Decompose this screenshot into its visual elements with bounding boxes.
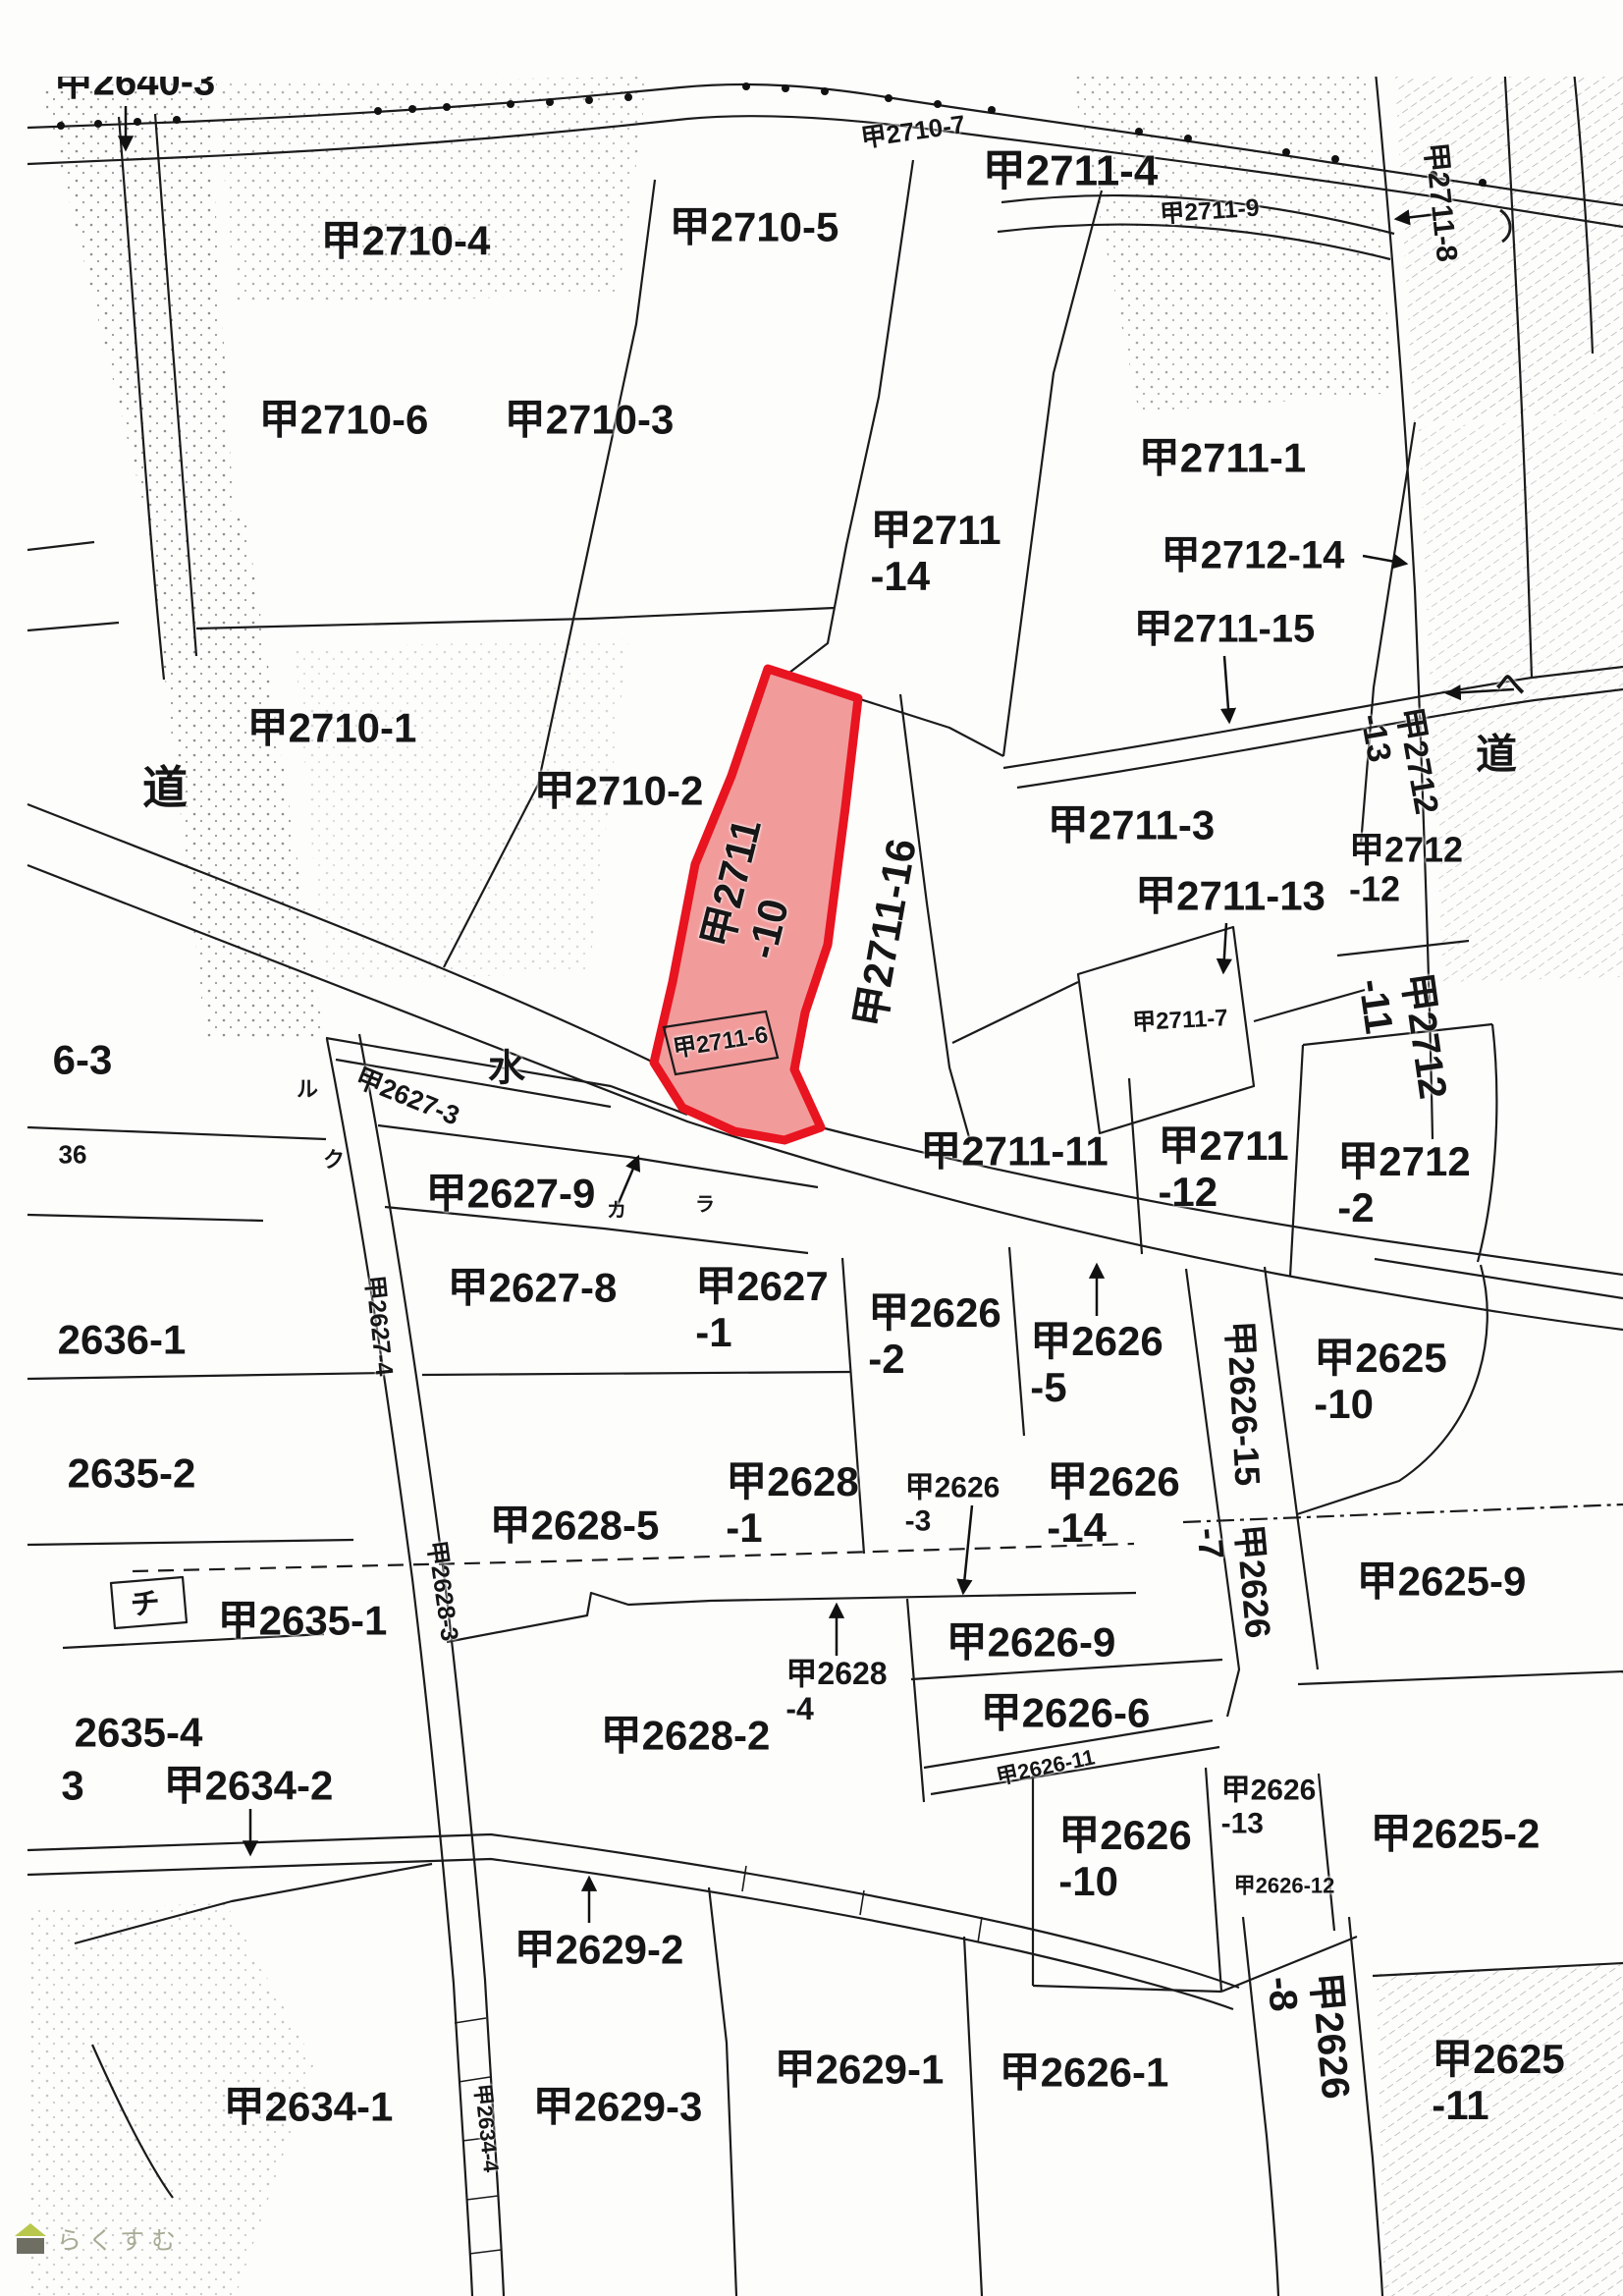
parcel-label-k2627-4: 甲2627-4	[360, 1274, 399, 1377]
parcel-label-k2635-4: 2635-4	[75, 1709, 203, 1755]
parcel-label-k2626-2: 甲2626-2	[868, 1289, 1001, 1382]
parcel-label-n36: 36	[59, 1140, 87, 1169]
parcel-label-k2710-2: 甲2710-2	[534, 767, 704, 813]
parcel-label-k2710-3: 甲2710-3	[505, 396, 675, 442]
parcel-label-k2711-14: 甲2711-14	[870, 507, 1001, 599]
parcel-label-ru: ル	[297, 1078, 318, 1103]
parcel-label-k2626-1: 甲2626-1	[1000, 2049, 1169, 2095]
scan-top-margin	[0, 0, 1623, 77]
parcel-label-k2711-12: 甲2711-12	[1158, 1122, 1288, 1215]
parcel-label-k2712-11: 甲2712-11	[1350, 970, 1455, 1108]
parcel-label-k2711-6: 甲2711-6	[672, 1022, 770, 1064]
parcel-label-k2626-13: 甲2626-13	[1221, 1774, 1317, 1839]
parcel-label-k2711-1: 甲2711-1	[1139, 434, 1306, 480]
parcel-label-k2626-5: 甲2626-5	[1030, 1318, 1163, 1410]
parcel-label-k2710-4: 甲2710-4	[321, 217, 491, 263]
parcel-label-k2711-3: 甲2711-3	[1048, 801, 1215, 847]
parcel-label-k2712-13: 甲2712-13	[1353, 704, 1445, 823]
parcel-label-k2627-8: 甲2627-8	[448, 1264, 618, 1310]
parcel-label-k2711-7: 甲2711-7	[1132, 1006, 1229, 1037]
parcel-label-mizu: 水	[488, 1049, 525, 1091]
parcel-label-k2634-2: 甲2634-2	[164, 1762, 334, 1808]
parcel-label-k2634-1: 甲2634-1	[224, 2083, 394, 2129]
parcel-label-k2625-2: 甲2625-2	[1371, 1810, 1541, 1856]
parcel-label-k2626-6: 甲2626-6	[981, 1689, 1151, 1735]
parcel-label-k2711-8: 甲2711-8	[1418, 141, 1463, 264]
watermark-text: らくすむ	[57, 2221, 183, 2257]
parcel-label-k2627-9: 甲2627-9	[426, 1170, 596, 1216]
parcel-label-michi-left: 道	[142, 763, 188, 814]
parcel-label-k2712-14: 甲2712-14	[1162, 534, 1345, 578]
labels-layer: 甲2640-3甲2710-7甲2711-4甲2710-4甲2710-5甲2711…	[0, 0, 1623, 2296]
parcel-label-k2635-1: 甲2635-1	[218, 1597, 388, 1643]
parcel-label-chi: チ	[130, 1587, 161, 1622]
parcel-label-k2711-4: 甲2711-4	[983, 146, 1159, 194]
parcel-label-k2625-9: 甲2625-9	[1357, 1558, 1527, 1604]
parcel-label-k2712-2: 甲2712-2	[1337, 1138, 1470, 1230]
parcel-label-k26-6-3: 6-3	[53, 1036, 113, 1082]
parcel-label-k2629-3: 甲2629-3	[533, 2083, 703, 2129]
parcel-label-k2626-8: 甲2626-8	[1259, 1971, 1357, 2105]
parcel-label-ka: カ	[607, 1200, 626, 1222]
parcel-label-k2712-12: 甲2712-12	[1349, 831, 1463, 910]
parcel-label-k2628-2: 甲2628-2	[601, 1712, 771, 1758]
parcel-label-k2628-1: 甲2628-1	[726, 1458, 858, 1551]
parcel-label-k2711-10[interactable]: 甲2711-10	[693, 814, 814, 963]
parcel-label-k2629-1: 甲2629-1	[775, 2046, 945, 2092]
parcel-label-k2634-4: 甲2634-4	[469, 2083, 503, 2174]
parcel-label-k2710-7: 甲2710-7	[859, 110, 967, 153]
parcel-label-k2710-6: 甲2710-6	[259, 396, 429, 442]
parcel-label-k2627-3: 甲2627-3	[352, 1063, 463, 1131]
parcel-label-ku: ク	[323, 1149, 345, 1174]
parcel-label-k2627-1: 甲2627-1	[695, 1263, 828, 1355]
parcel-label-k2635-2: 2635-2	[68, 1449, 196, 1496]
parcel-label-k2625-11: 甲2625-11	[1432, 2036, 1564, 2128]
parcel-label-ra: ラ	[695, 1194, 715, 1216]
parcel-label-he-mark: へ	[1495, 669, 1525, 702]
watermark: らくすむ	[14, 2221, 183, 2257]
house-icon	[14, 2223, 47, 2255]
parcel-label-k2628-3: 甲2628-3	[422, 1539, 463, 1643]
parcel-label-k2628-5: 甲2628-5	[490, 1502, 660, 1548]
parcel-label-k2626-9: 甲2626-9	[947, 1618, 1116, 1665]
parcel-label-k2626-12: 甲2626-12	[1234, 1875, 1335, 1899]
parcel-label-k2626-11: 甲2626-11	[995, 1745, 1097, 1789]
parcel-label-k2636-1: 2636-1	[58, 1316, 187, 1362]
parcel-label-k2626-10: 甲2626-10	[1058, 1812, 1191, 1904]
parcel-label-k2710-1: 甲2710-1	[247, 704, 417, 750]
parcel-label-k2625-10: 甲2625-10	[1314, 1335, 1446, 1427]
parcel-label-michi-right: 道	[1476, 731, 1517, 777]
parcel-label-k2711-15: 甲2711-15	[1134, 608, 1316, 652]
parcel-label-k2628-4: 甲2628-4	[785, 1657, 887, 1727]
cadastral-map: 甲2640-3甲2710-7甲2711-4甲2710-4甲2710-5甲2711…	[0, 0, 1623, 2296]
parcel-label-k2626-15: 甲2626-15	[1218, 1320, 1267, 1487]
parcel-label-n3: 3	[61, 1762, 83, 1808]
parcel-label-k2626-7: 甲2626-7	[1189, 1523, 1277, 1644]
parcel-label-k2711-9: 甲2711-9	[1159, 193, 1260, 228]
parcel-label-k2711-13: 甲2711-13	[1135, 872, 1325, 918]
parcel-label-k2626-3: 甲2626-3	[905, 1471, 1001, 1537]
parcel-label-k2629-2: 甲2629-2	[514, 1926, 684, 1972]
parcel-label-k2711-16: 甲2711-16	[846, 835, 925, 1030]
parcel-label-k2711-11: 甲2711-11	[920, 1127, 1109, 1174]
parcel-label-k2710-5: 甲2710-5	[670, 203, 839, 249]
parcel-label-k2626-14: 甲2626-14	[1047, 1458, 1179, 1551]
